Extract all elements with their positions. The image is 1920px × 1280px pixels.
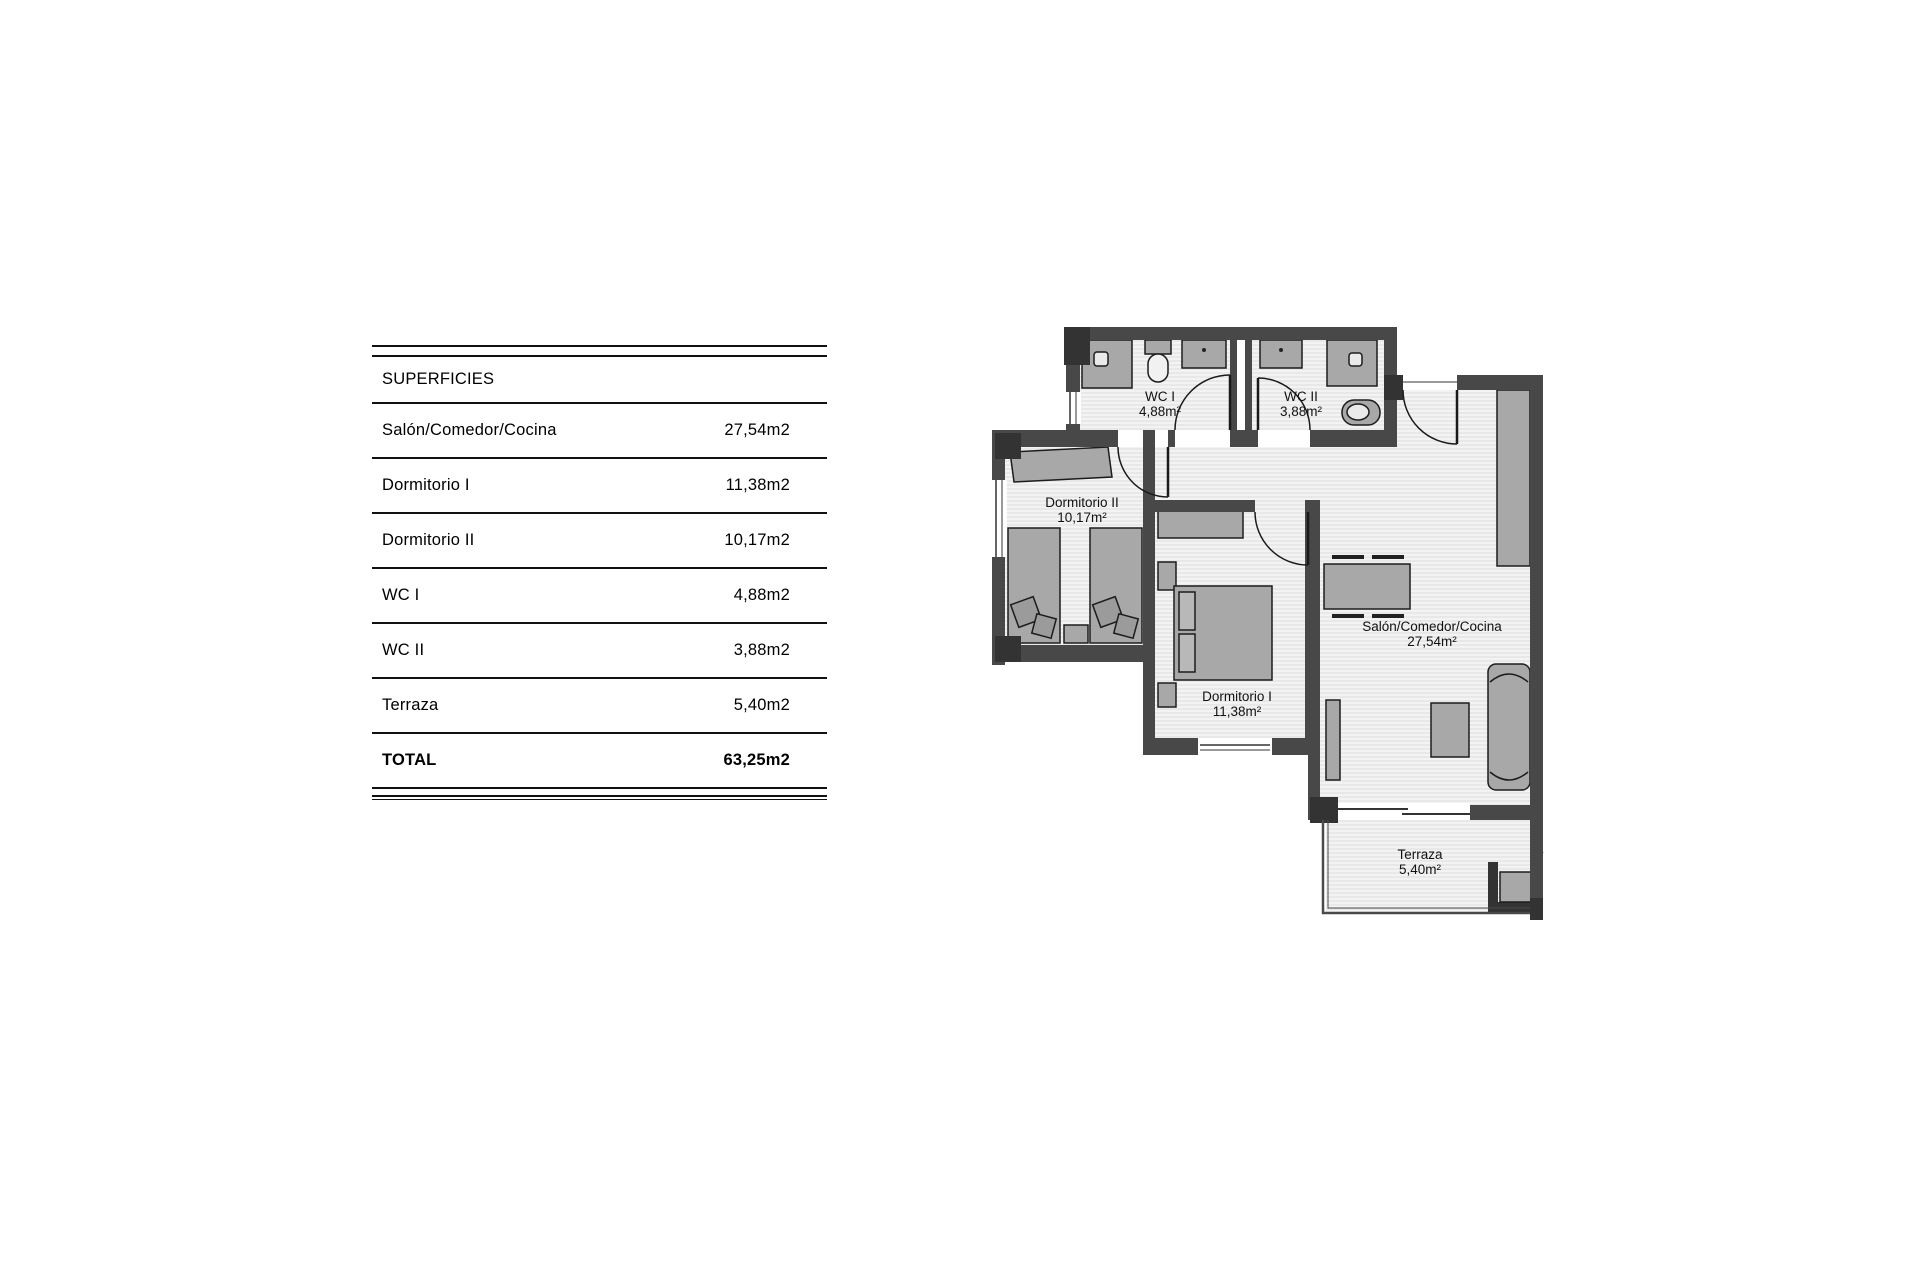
floor-plan: WC I 4,88m² WC II 3,88m² Dormitorio II 1… xyxy=(960,300,1560,940)
surfaces-table: SUPERFICIES Salón/Comedor/Cocina 27,54m2… xyxy=(372,345,827,800)
row-label: WC II xyxy=(382,641,424,660)
table-bottom-line-3 xyxy=(372,799,827,800)
table-row: Salón/Comedor/Cocina 27,54m2 xyxy=(372,404,827,457)
table-title: SUPERFICIES xyxy=(382,370,494,389)
row-label: Salón/Comedor/Cocina xyxy=(382,421,557,440)
faucet-dot xyxy=(1279,348,1283,352)
toilet-seat xyxy=(1347,404,1369,420)
dining-table xyxy=(1324,564,1410,609)
pillow xyxy=(1114,614,1138,638)
table-row: Dormitorio II 10,17m2 xyxy=(372,514,827,567)
row-value: 4,88m2 xyxy=(734,586,790,605)
row-value: 3,88m2 xyxy=(734,641,790,660)
room-label-salon: Salón/Comedor/Cocina xyxy=(1362,619,1502,634)
room-label-dormitorio2: Dormitorio II xyxy=(1045,495,1119,510)
coffee-table xyxy=(1431,703,1469,757)
vanity-sink xyxy=(1260,340,1302,368)
nightstand xyxy=(1064,625,1088,643)
shower-drain xyxy=(1094,352,1108,366)
vanity-sink xyxy=(1182,340,1226,368)
tv-unit xyxy=(1326,700,1340,780)
room-label-wc1: WC I xyxy=(1145,389,1175,404)
room-area-wc1: 4,88m² xyxy=(1139,404,1182,419)
table-row: WC II 3,88m2 xyxy=(372,624,827,677)
faucet-dot xyxy=(1202,348,1206,352)
row-label: WC I xyxy=(382,586,419,605)
toilet-tank xyxy=(1145,340,1171,354)
row-value: 11,38m2 xyxy=(726,476,790,495)
shower-drain xyxy=(1349,353,1362,366)
row-value: 10,17m2 xyxy=(724,531,790,550)
room-area-salon: 27,54m² xyxy=(1407,634,1457,649)
table-row: WC I 4,88m2 xyxy=(372,569,827,622)
row-label: Dormitorio II xyxy=(382,531,474,550)
pillow xyxy=(1032,614,1056,638)
wardrobe xyxy=(1010,447,1112,482)
toilet-bowl xyxy=(1148,354,1168,382)
kitchen-counter xyxy=(1497,390,1530,566)
room-label-terraza: Terraza xyxy=(1397,847,1443,862)
room-area-wc2: 3,88m² xyxy=(1280,404,1323,419)
room-area-terraza: 5,40m² xyxy=(1399,862,1442,877)
row-value: 27,54m2 xyxy=(724,421,790,440)
room-label-dormitorio1: Dormitorio I xyxy=(1202,689,1272,704)
total-label: TOTAL xyxy=(382,751,436,770)
sofa xyxy=(1488,664,1530,790)
total-value: 63,25m2 xyxy=(723,751,790,770)
row-value: 5,40m2 xyxy=(734,696,790,715)
row-label: Dormitorio I xyxy=(382,476,470,495)
nightstand xyxy=(1158,683,1176,707)
shaft xyxy=(1237,340,1245,430)
room-area-dormitorio1: 11,38m² xyxy=(1213,704,1262,719)
table-row: Terraza 5,40m2 xyxy=(372,679,827,732)
room-label-wc2: WC II xyxy=(1284,389,1318,404)
room-area-dormitorio2: 10,17m² xyxy=(1057,510,1107,525)
table-title-row: SUPERFICIES xyxy=(372,357,827,402)
pillow xyxy=(1179,592,1195,630)
table-total-row: TOTAL 63,25m2 xyxy=(372,734,827,787)
pillow xyxy=(1179,634,1195,672)
sliding-door xyxy=(1338,803,1470,820)
table-row: Dormitorio I 11,38m2 xyxy=(372,459,827,512)
row-label: Terraza xyxy=(382,696,438,715)
